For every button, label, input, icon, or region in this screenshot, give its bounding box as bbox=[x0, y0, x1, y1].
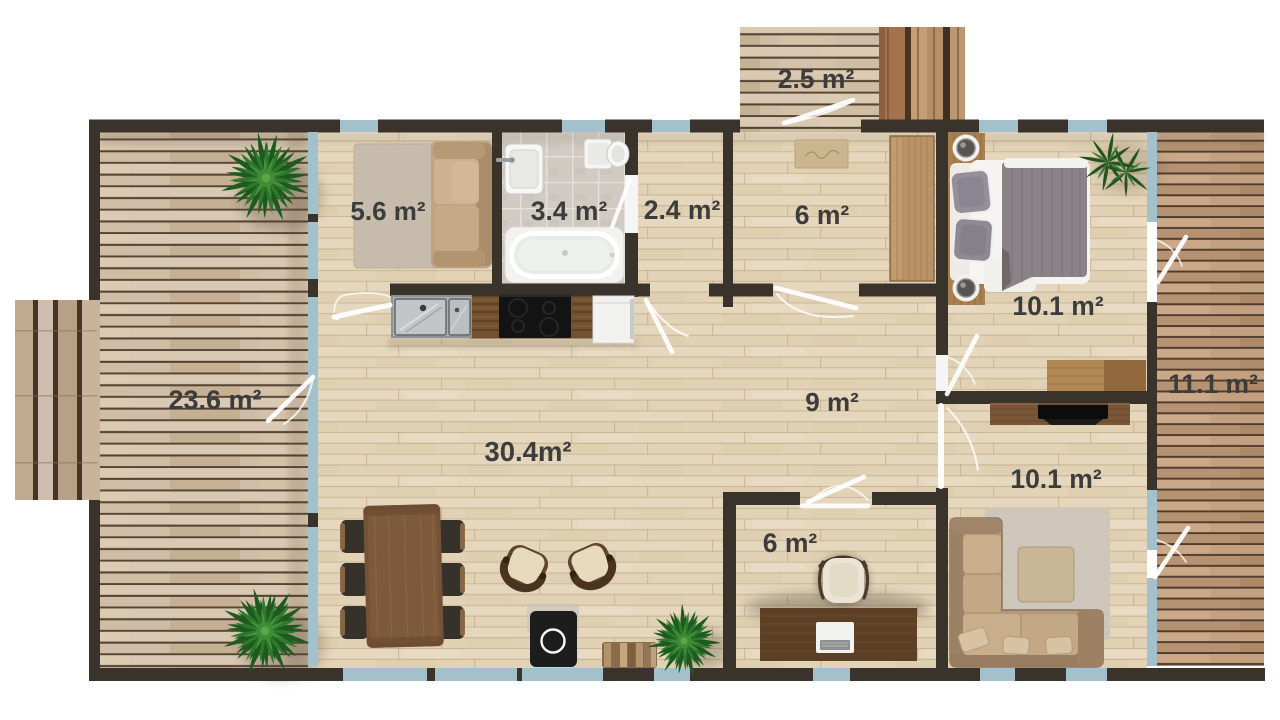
svg-text:6 m²: 6 m² bbox=[795, 200, 850, 230]
svg-text:9 m²: 9 m² bbox=[805, 387, 859, 417]
svg-text:2.4 m²: 2.4 m² bbox=[644, 195, 721, 225]
svg-text:11.1 m²: 11.1 m² bbox=[1168, 369, 1258, 399]
svg-text:23.6 m²: 23.6 m² bbox=[168, 385, 261, 415]
svg-text:10.1 m²: 10.1 m² bbox=[1012, 291, 1104, 321]
svg-text:5.6 m²: 5.6 m² bbox=[350, 196, 425, 226]
svg-text:3.4 m²: 3.4 m² bbox=[531, 196, 608, 226]
svg-text:6 m²: 6 m² bbox=[763, 528, 818, 558]
svg-text:10.1 m²: 10.1 m² bbox=[1010, 464, 1102, 494]
svg-text:30.4m²: 30.4m² bbox=[484, 436, 571, 467]
svg-text:2.5 m²: 2.5 m² bbox=[778, 64, 855, 94]
